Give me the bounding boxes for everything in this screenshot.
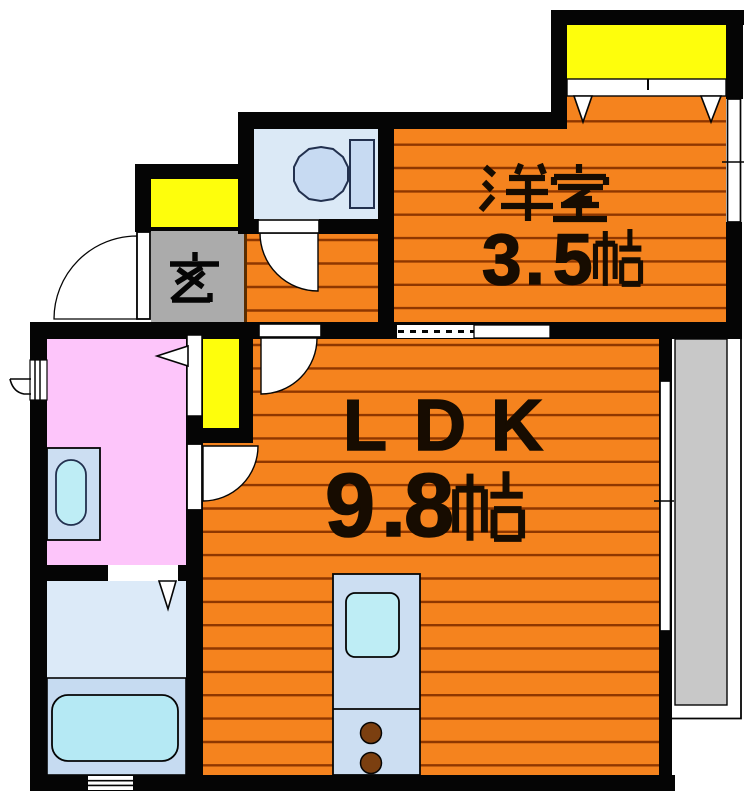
- svg-text:K: K: [491, 386, 543, 466]
- svg-text:.: .: [525, 221, 545, 300]
- svg-text:5: 5: [553, 221, 593, 300]
- svg-text:.: .: [381, 456, 406, 556]
- svg-text:8: 8: [404, 456, 454, 556]
- svg-text:L: L: [343, 386, 387, 466]
- svg-text:9: 9: [325, 456, 375, 556]
- svg-text:D: D: [414, 386, 466, 466]
- svg-text:3: 3: [482, 221, 522, 300]
